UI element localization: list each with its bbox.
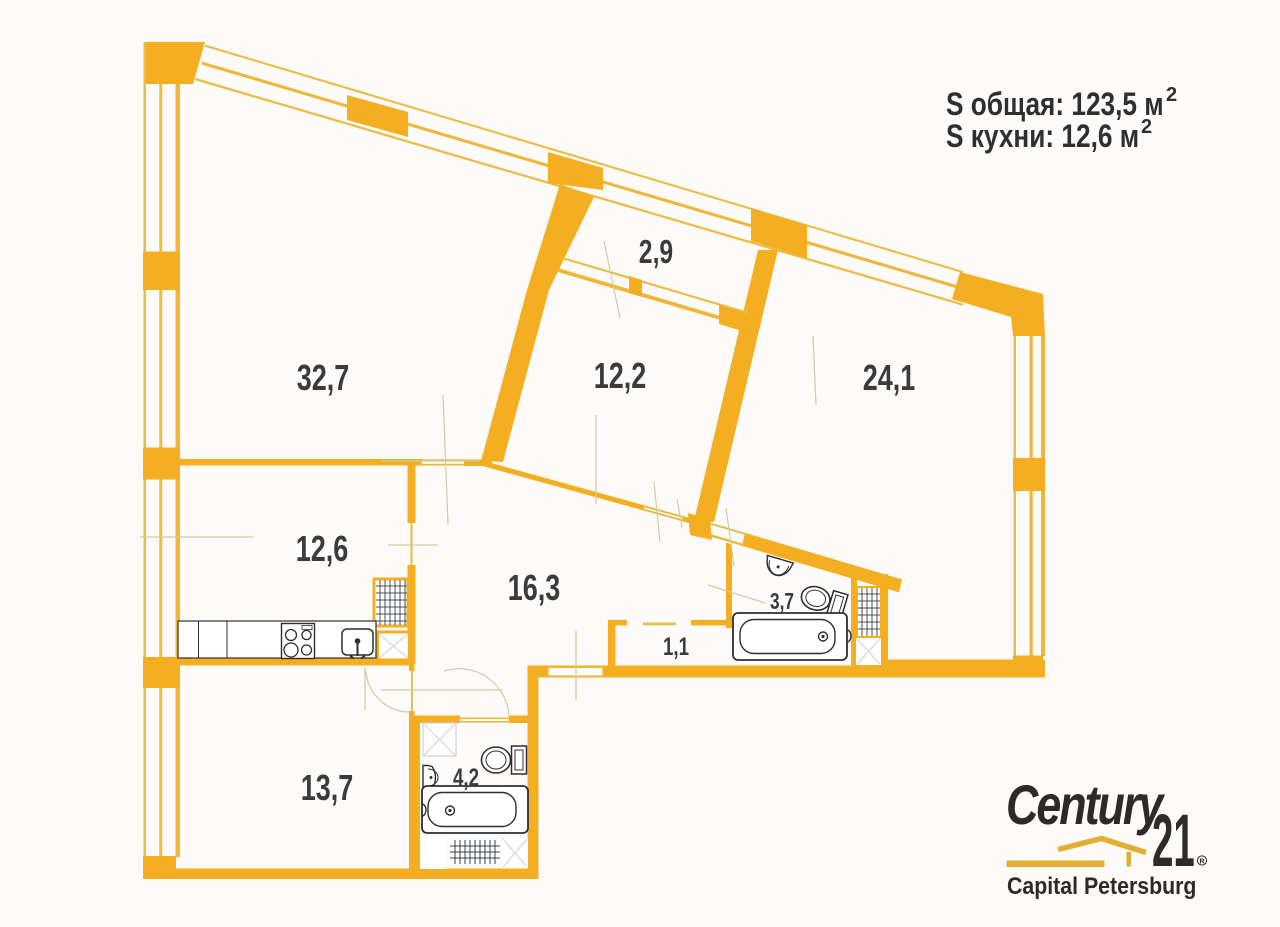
svg-text:1,1: 1,1 <box>663 632 689 660</box>
svg-text:12,2: 12,2 <box>594 355 647 396</box>
svg-text:Century: Century <box>1006 773 1166 836</box>
svg-text:2,9: 2,9 <box>639 235 673 271</box>
svg-text:12,6: 12,6 <box>296 528 349 569</box>
svg-text:16,3: 16,3 <box>508 567 561 608</box>
svg-text:3,7: 3,7 <box>770 590 794 615</box>
svg-text:S кухни: 12,6 м: S кухни: 12,6 м <box>946 120 1139 155</box>
svg-text:13,7: 13,7 <box>301 767 354 808</box>
svg-text:21: 21 <box>1152 801 1195 883</box>
svg-text:Capital Petersburg: Capital Petersburg <box>1007 872 1196 900</box>
svg-text:S общая: 123,5 м: S общая: 123,5 м <box>946 88 1164 123</box>
svg-text:4,2: 4,2 <box>453 763 479 791</box>
svg-text:2: 2 <box>1141 116 1152 138</box>
svg-text:32,7: 32,7 <box>297 357 350 398</box>
svg-text:2: 2 <box>1166 84 1177 106</box>
svg-text:R: R <box>1199 859 1204 866</box>
svg-text:24,1: 24,1 <box>863 357 916 398</box>
